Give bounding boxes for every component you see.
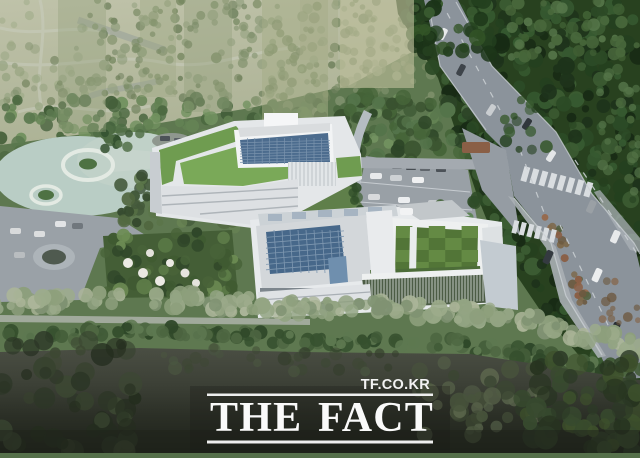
svg-text:THE FACT: THE FACT <box>210 395 434 441</box>
svg-text:TF.CO.KR: TF.CO.KR <box>361 377 430 393</box>
